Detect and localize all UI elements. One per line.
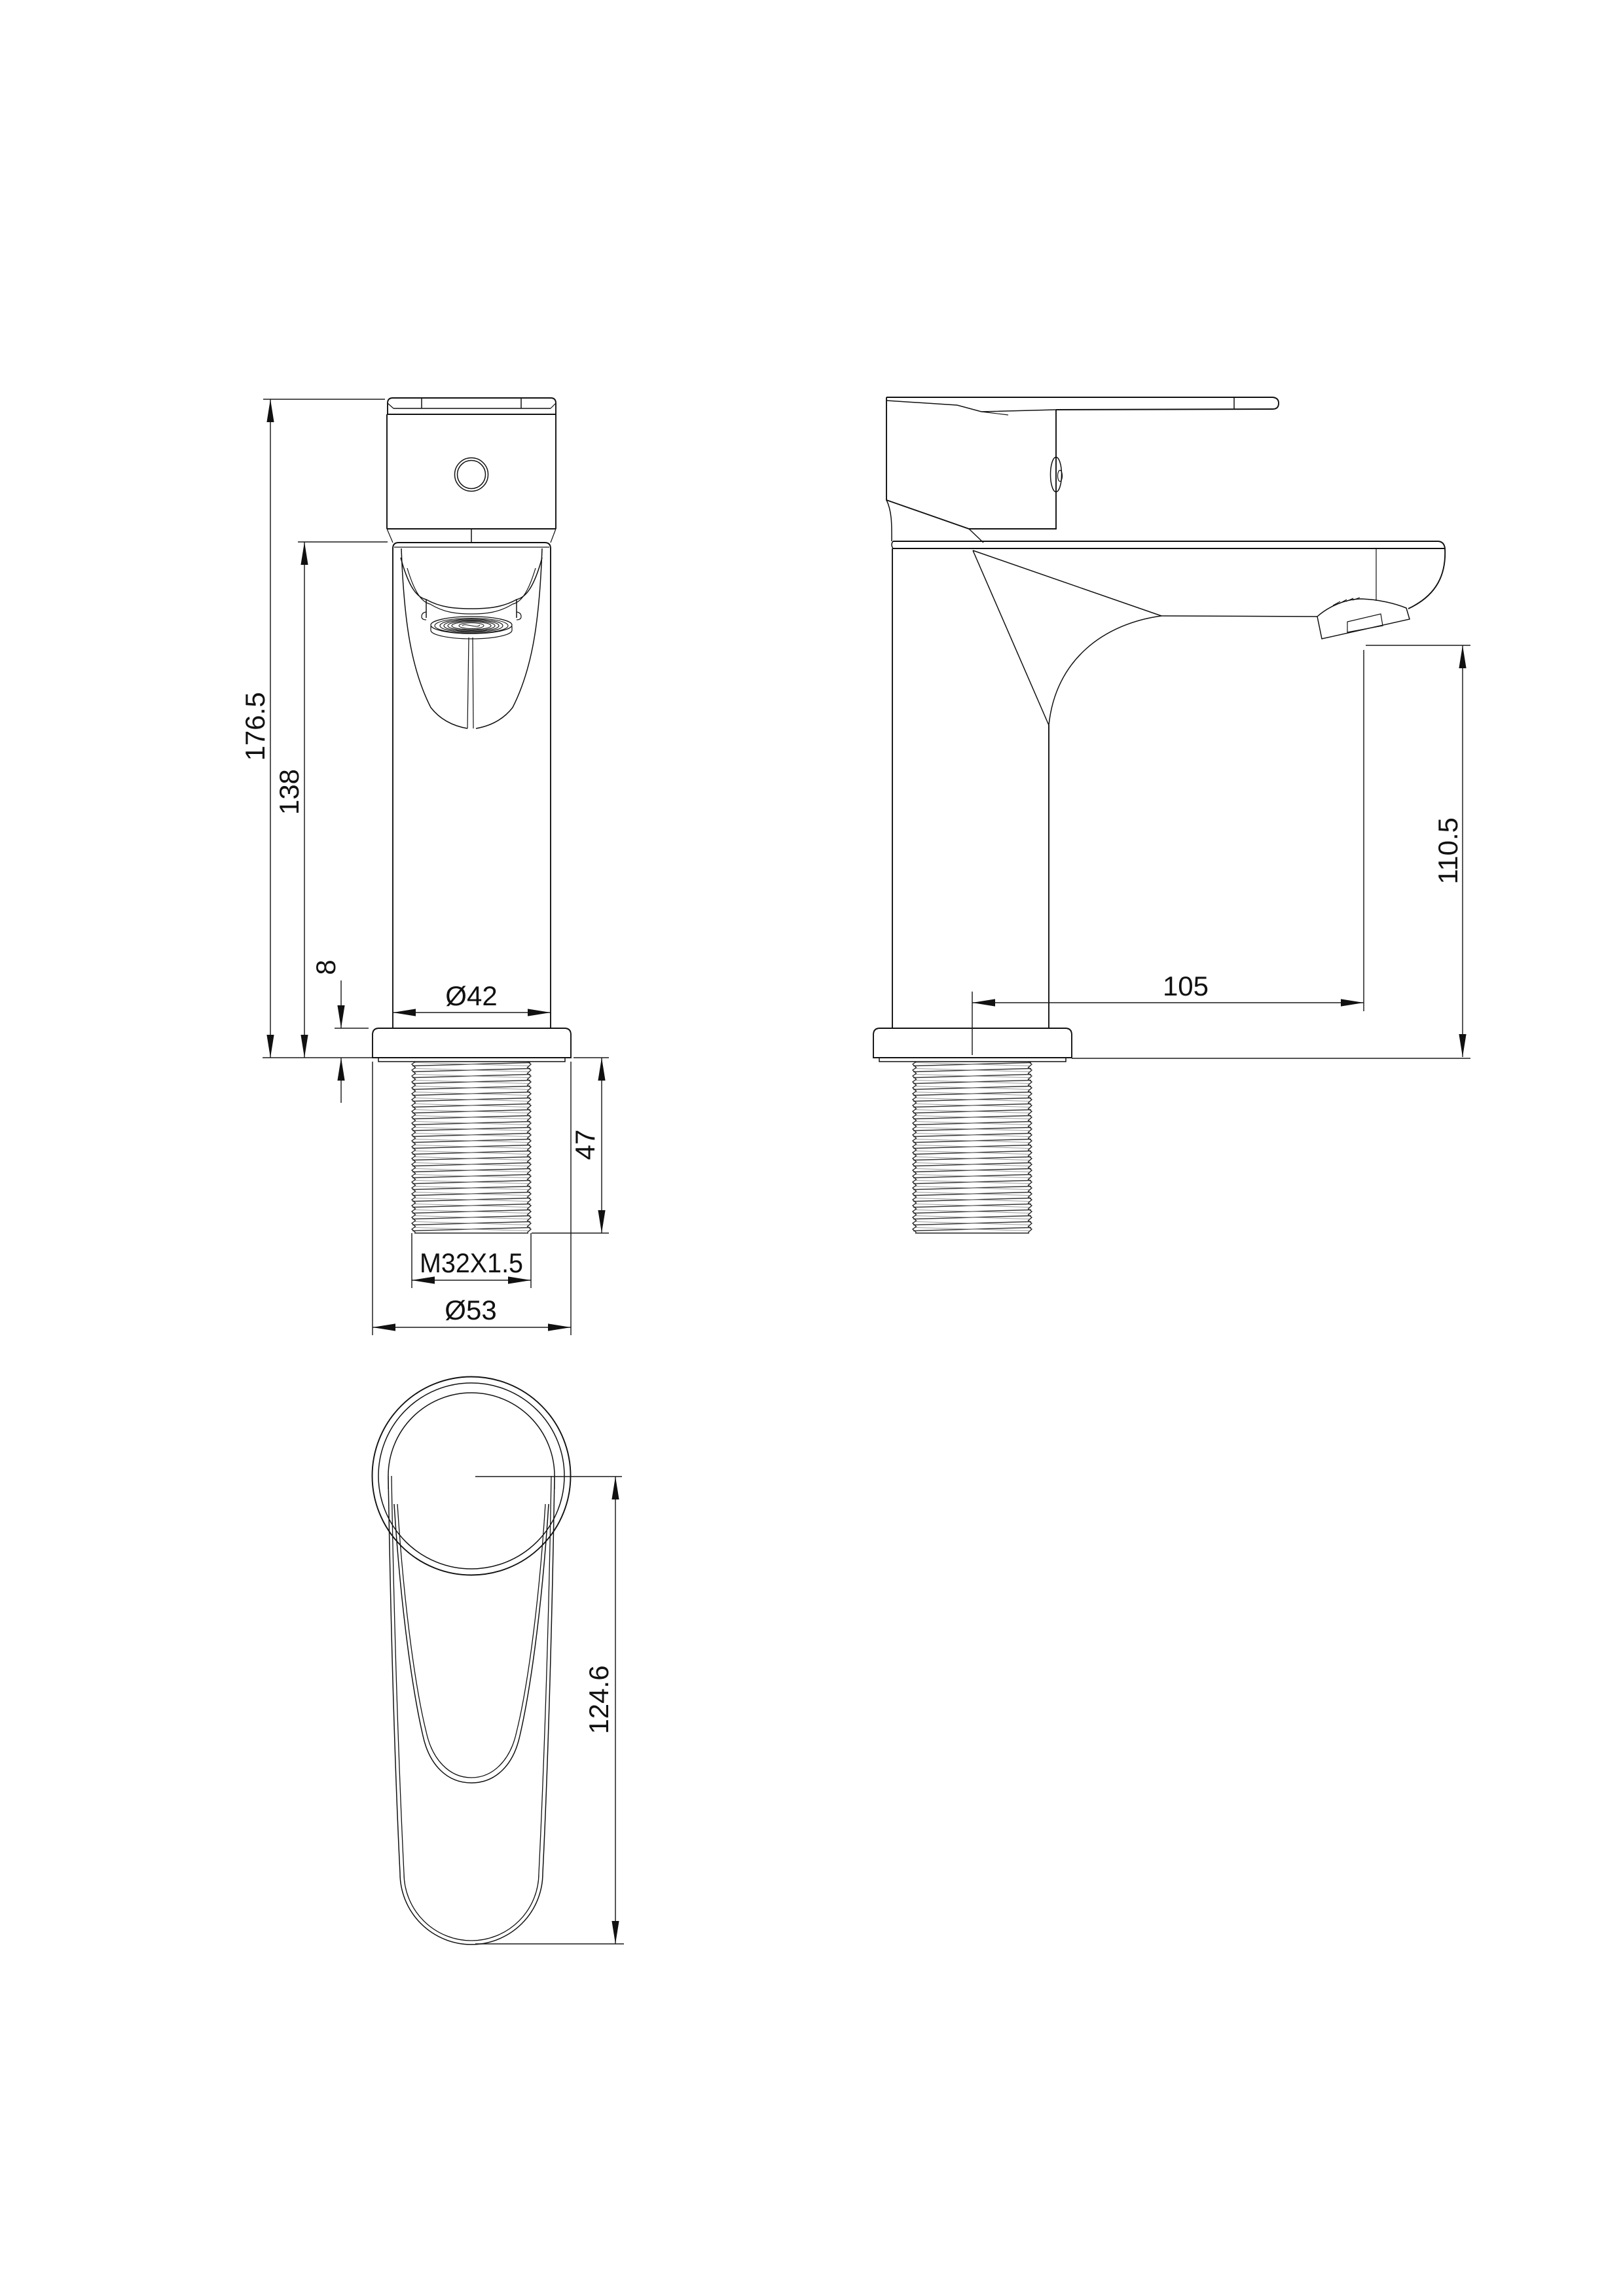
- svg-text:Ø42: Ø42: [445, 980, 497, 1011]
- svg-text:Ø53: Ø53: [445, 1295, 496, 1325]
- svg-text:M32X1.5: M32X1.5: [420, 1247, 523, 1278]
- svg-text:8: 8: [310, 960, 341, 975]
- svg-text:105: 105: [1163, 971, 1209, 1001]
- svg-text:176.5: 176.5: [240, 692, 270, 761]
- svg-text:138: 138: [274, 769, 304, 815]
- svg-text:110.5: 110.5: [1432, 817, 1463, 884]
- svg-text:47: 47: [570, 1130, 600, 1160]
- svg-text:124.6: 124.6: [583, 1665, 614, 1734]
